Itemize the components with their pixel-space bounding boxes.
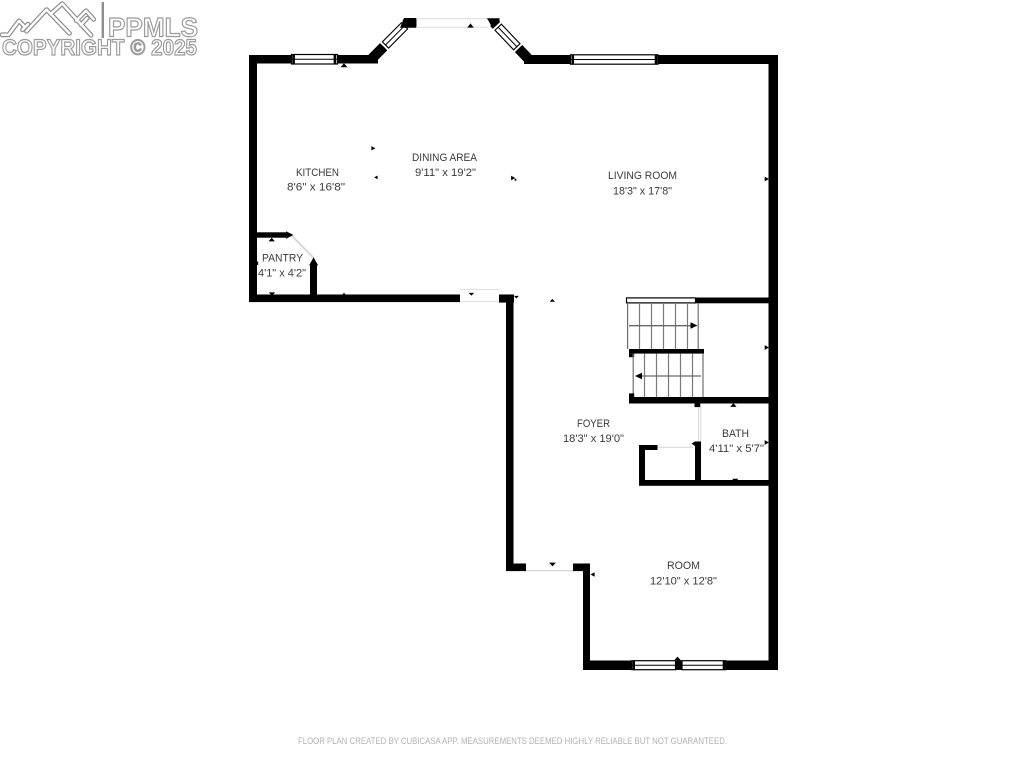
svg-text:DINING AREA: DINING AREA — [412, 152, 478, 164]
svg-text:LIVING ROOM: LIVING ROOM — [608, 170, 677, 182]
svg-text:FOYER: FOYER — [577, 418, 610, 430]
svg-text:4'1" x 4'2": 4'1" x 4'2" — [258, 268, 306, 280]
svg-text:FLOOR PLAN CREATED BY CUBICASA: FLOOR PLAN CREATED BY CUBICASA APP. MEAS… — [298, 736, 727, 746]
svg-text:BATH: BATH — [722, 428, 749, 440]
svg-text:12'10" x 12'8": 12'10" x 12'8" — [650, 576, 717, 588]
svg-text:COPYRIGHT © 2025: COPYRIGHT © 2025 — [2, 35, 197, 60]
svg-text:PANTRY: PANTRY — [262, 253, 304, 265]
svg-text:18'3" x 19'0": 18'3" x 19'0" — [563, 433, 624, 445]
svg-text:9'11" x 19'2": 9'11" x 19'2" — [415, 167, 476, 179]
svg-text:ROOM: ROOM — [667, 560, 700, 572]
svg-text:KITCHEN: KITCHEN — [296, 167, 339, 179]
svg-text:8'6" x 16'8": 8'6" x 16'8" — [287, 182, 345, 194]
svg-text:18'3" x 17'8": 18'3" x 17'8" — [613, 186, 672, 198]
svg-text:4'11" x 5'7": 4'11" x 5'7" — [709, 443, 764, 455]
